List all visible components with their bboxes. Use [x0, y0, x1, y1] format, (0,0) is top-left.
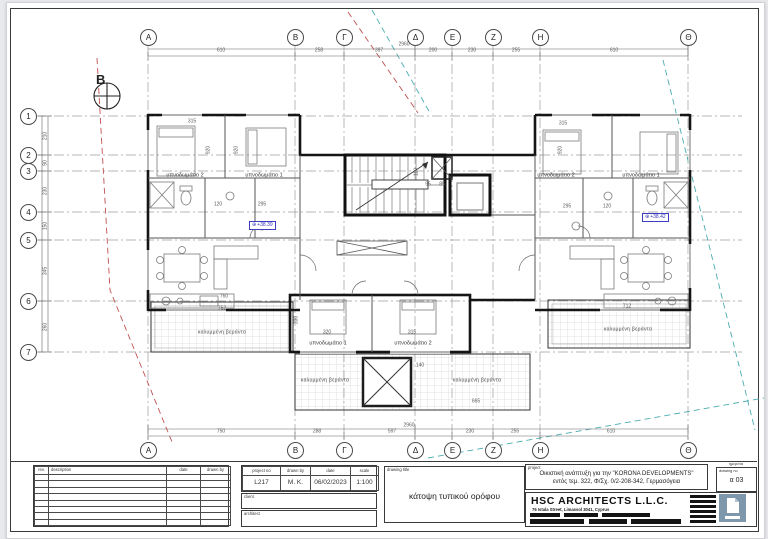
- grid-bubble-top-d: Δ: [407, 29, 424, 46]
- grid-bubble-top-z: Z: [485, 29, 502, 46]
- client-box: client: [241, 493, 377, 509]
- date-value: 06/02/2023: [311, 476, 351, 491]
- description-col-header: description: [49, 467, 167, 475]
- grid-bubble-5: 5: [20, 232, 37, 249]
- corridor-planter: [337, 241, 407, 255]
- drawing-title: κάτοψη τυπικού ορόφου: [385, 491, 524, 501]
- dimension-label: 920: [559, 146, 564, 154]
- room-label: υπνοδωμάτιο 2: [537, 173, 574, 179]
- architect-label: architect: [244, 512, 260, 516]
- redacted-contact-info: [690, 505, 716, 508]
- document-icon: [719, 494, 746, 522]
- dimension-label: 258: [315, 49, 323, 54]
- dimension-label: 230: [44, 187, 49, 195]
- corner-label: ημερ/νία: [714, 462, 758, 466]
- dimension-label: 90: [44, 160, 49, 166]
- architectural-drawing-sheet: { "north_label": "B", "grid": { "top_let…: [0, 0, 768, 539]
- project-line2: εντός τεμ. 322, Φ/Σχ. 0/2-208-342, Γερμα…: [526, 478, 707, 486]
- dimension-label: 120: [603, 205, 611, 210]
- redacted-contact-info: [564, 513, 598, 517]
- grid-bubble-bot-b: B: [287, 442, 304, 459]
- drawing-no-value: α 03: [717, 477, 756, 484]
- project-description-box: project Οικιστική ανάπτυξη για την "KORO…: [525, 464, 708, 490]
- grid-bubble-bot-a: A: [140, 442, 157, 459]
- project-label: project: [528, 466, 541, 470]
- firm-address: 76 Istala Street, Limassol 3041, Cyprus: [532, 508, 609, 512]
- firm-name: HSC ARCHITECTS L.L.C.: [531, 496, 668, 507]
- firm-logo: [719, 494, 746, 522]
- architect-box: architect: [241, 510, 377, 527]
- revision-table: rev. description date drawn by: [33, 465, 229, 527]
- level-marker-right: ⊕ +38.42: [642, 213, 669, 222]
- grid-bubble-bot-d: Δ: [407, 442, 424, 459]
- room-label: υπνοδωμάτιο 1: [622, 173, 659, 179]
- level-marker-left: ⊕ +38.39: [249, 221, 276, 230]
- level-value: +38.42: [650, 215, 665, 220]
- grid-bubble-bot-th: Θ: [680, 442, 697, 459]
- level-icon: ⊕: [252, 223, 256, 228]
- dimension-label: 85: [439, 183, 445, 188]
- scale-value: 1:100: [351, 476, 379, 491]
- dimension-label: 110: [415, 168, 420, 176]
- redacted-contact-info: [690, 500, 716, 503]
- date-col-header: date: [167, 467, 201, 475]
- drawing-title-label: drawing title: [387, 468, 409, 472]
- grid-bubble-bot-h: H: [532, 442, 549, 459]
- grid-bubble-top-th: Θ: [680, 29, 697, 46]
- dimension-label: 255: [511, 430, 519, 435]
- dimension-label: 2960: [403, 424, 414, 429]
- drawing-no-box: drawing no α 03: [716, 467, 757, 492]
- grid-bubble-bot-g: Γ: [336, 442, 353, 459]
- redacted-contact-info: [530, 519, 584, 524]
- dimension-label: 920: [235, 146, 240, 154]
- redacted-contact-info: [631, 519, 681, 524]
- drawing-no-label: drawing no: [719, 469, 738, 473]
- redacted-contact-info: [690, 495, 716, 498]
- level-value: +38.39: [257, 223, 272, 228]
- client-label: client: [244, 495, 254, 499]
- dimension-label: 255: [512, 49, 520, 54]
- dimension-label: 330: [295, 316, 300, 324]
- grid-bubble-bot-e: E: [444, 442, 461, 459]
- veranda-label: καλυμμένη βεράντα: [301, 379, 349, 384]
- dimension-label: 120: [214, 203, 222, 208]
- dimension-label: 288: [313, 430, 321, 435]
- redacted-contact-info: [690, 515, 716, 518]
- dimension-label: 315: [408, 331, 416, 336]
- redacted-contact-info: [530, 513, 560, 517]
- dimension-label: 230: [468, 49, 476, 54]
- grid-bubble-7: 7: [20, 344, 37, 361]
- drawing-title-box: drawing title κάτοψη τυπικού ορόφου: [384, 466, 525, 523]
- dimension-label: 260: [44, 323, 49, 331]
- dimension-label: 210: [44, 132, 49, 140]
- grid-bubble-3: 3: [20, 163, 37, 180]
- dimension-label: 760: [220, 295, 228, 300]
- redacted-contact-info: [690, 520, 716, 523]
- dimension-label: 140: [416, 364, 424, 369]
- veranda-label: καλυμμένη βεράντα: [453, 379, 501, 384]
- project-info-table: project no drawn by date scale L217 M. K…: [241, 465, 377, 492]
- grid-bubble-top-b: B: [287, 29, 304, 46]
- dimension-label: 752: [218, 307, 226, 312]
- dimension-label: 345: [44, 267, 49, 275]
- date-header: date: [311, 467, 351, 476]
- veranda-label: καλυμμένη βεράντα: [604, 328, 652, 333]
- door-swings: [250, 226, 590, 295]
- dimension-label: 750: [217, 430, 225, 435]
- dimension-label: 610: [217, 49, 225, 54]
- drawn-by-header: drawn by: [281, 467, 311, 476]
- dimension-label: 315: [188, 120, 196, 125]
- dimension-label: 150: [44, 222, 49, 230]
- stair-rail: [372, 180, 428, 189]
- grid-bubble-1: 1: [20, 108, 37, 125]
- grid-bubble-6: 6: [20, 293, 37, 310]
- dimension-label: 295: [563, 205, 571, 210]
- dimension-label: 95: [425, 183, 431, 188]
- drawn-by-value: M. K.: [281, 476, 311, 491]
- level-icon: ⊕: [645, 215, 649, 220]
- project-no-value: L217: [243, 476, 281, 491]
- room-label: υπνοδωμάτιο 1: [309, 341, 346, 347]
- grid-bubble-top-e: E: [444, 29, 461, 46]
- grid-bubble-top-h: H: [532, 29, 549, 46]
- floor-plan-drawing: [0, 0, 768, 539]
- dimension-label: 397: [375, 49, 383, 54]
- grid-bubble-4: 4: [20, 204, 37, 221]
- grid-bubble-2: 2: [20, 147, 37, 164]
- dimension-label: 712: [623, 305, 631, 310]
- dimension-label: 610: [610, 49, 618, 54]
- redacted-contact-info: [602, 513, 650, 517]
- scale-header: scale: [351, 467, 379, 476]
- dimension-label: 665: [472, 400, 480, 405]
- grid-bubble-top-a: A: [140, 29, 157, 46]
- dimension-label: 315: [559, 122, 567, 127]
- room-label: υπνοδωμάτιο 2: [166, 173, 203, 179]
- room-label: υπνοδωμάτιο 1: [245, 173, 282, 179]
- dimension-label: 230: [466, 430, 474, 435]
- grid-bubble-bot-z: Z: [485, 442, 502, 459]
- grid-bubble-top-g: Γ: [336, 29, 353, 46]
- dimension-label: 920: [207, 146, 212, 154]
- dimension-label: 295: [258, 203, 266, 208]
- dimension-label: 597: [388, 430, 396, 435]
- verandas: [151, 300, 690, 410]
- project-line1: Οικιστική ανάπτυξη για την "KORONA DEVEL…: [526, 470, 707, 478]
- veranda-label: καλυμμένη βεράντα: [198, 331, 246, 336]
- project-no-header: project no: [243, 467, 281, 476]
- dimension-label: 2960: [398, 43, 409, 48]
- dimension-label: 200: [429, 49, 437, 54]
- redacted-contact-info: [589, 519, 627, 524]
- redacted-contact-info: [690, 510, 716, 513]
- drawnby-col-header: drawn by: [201, 467, 231, 475]
- room-label: υπνοδωμάτιο 2: [394, 341, 431, 347]
- north-label: B: [96, 72, 105, 87]
- rev-col-header: rev.: [35, 467, 49, 475]
- dimension-label: 320: [323, 331, 331, 336]
- dimension-label: 610: [607, 430, 615, 435]
